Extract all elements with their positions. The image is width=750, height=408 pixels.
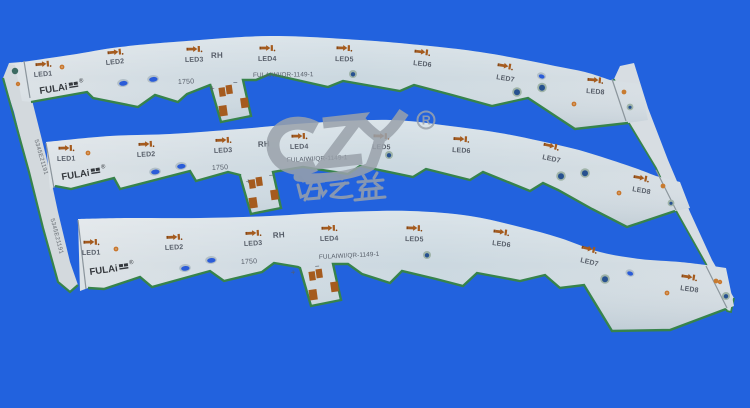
svg-text:LED6: LED6 <box>452 147 471 155</box>
svg-text:R: R <box>422 114 431 128</box>
svg-text:FULAIWI/QR-1149-1: FULAIWI/QR-1149-1 <box>253 71 314 79</box>
svg-text:1750: 1750 <box>212 164 229 172</box>
svg-text:LED8: LED8 <box>586 88 605 96</box>
svg-text:LED2: LED2 <box>165 244 184 252</box>
svg-text:LED4: LED4 <box>320 235 339 243</box>
svg-text:LED3: LED3 <box>185 57 204 64</box>
svg-text:LED3: LED3 <box>244 240 263 248</box>
svg-text:LED2: LED2 <box>137 151 156 159</box>
svg-text:+: + <box>291 268 297 277</box>
svg-text:LED4: LED4 <box>290 144 309 151</box>
svg-text:LED5: LED5 <box>405 236 424 243</box>
svg-text:LED1: LED1 <box>82 249 101 257</box>
svg-text:+: + <box>210 84 215 93</box>
svg-text:LED5: LED5 <box>335 56 354 63</box>
svg-text:1750: 1750 <box>178 78 195 86</box>
svg-text:−: − <box>233 78 238 87</box>
svg-text:−: − <box>269 171 274 180</box>
svg-text:RH: RH <box>211 51 223 60</box>
svg-text:RH: RH <box>273 230 286 240</box>
svg-text:LED1: LED1 <box>57 156 76 163</box>
svg-text:1750: 1750 <box>241 258 258 266</box>
svg-text:LED4: LED4 <box>258 56 277 63</box>
svg-text:LED3: LED3 <box>214 147 233 155</box>
